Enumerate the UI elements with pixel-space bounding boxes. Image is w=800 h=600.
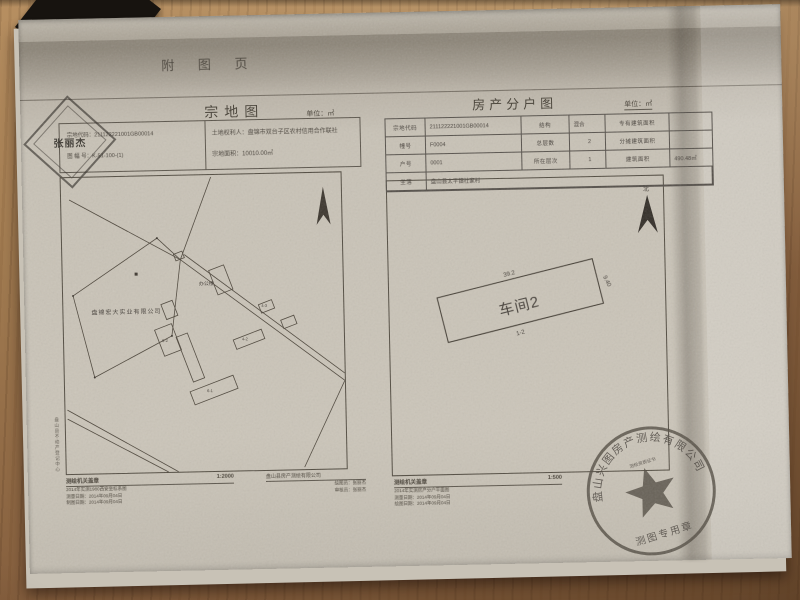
- building-label: 4-3: [261, 303, 268, 308]
- table-label: 结构: [521, 116, 569, 135]
- parcel-area-value: 10010.00㎡: [242, 151, 273, 158]
- table-label: 幢号: [386, 137, 426, 156]
- building-label: 6-1: [207, 388, 214, 393]
- name-stamp-text: 张丽杰: [53, 134, 86, 150]
- north-arrow-icon: [637, 195, 658, 233]
- seal-star-icon: [620, 460, 682, 520]
- survey-agency-label: 测绘机关盖章: [394, 478, 427, 487]
- table-label: 坐落: [387, 173, 427, 192]
- checker: 审核员：张丽杰: [266, 486, 366, 495]
- property-info-table: 宗地代码 211122221001GB00014 结构 混合 专有建筑面积 幢号…: [384, 112, 713, 193]
- survey-agency-label: 测绘机关盖章: [66, 476, 99, 485]
- table-label: 所在层次: [522, 152, 570, 171]
- table-value: F0004: [426, 135, 522, 155]
- document-page: 附 图 页 宗地图 单位：㎡ 宗地代码：211122221001GB00014 …: [18, 4, 791, 574]
- building-name: 车间2: [497, 293, 541, 320]
- building-label: 6-2: [162, 338, 169, 343]
- land-holder-label: 土地权利人：: [212, 130, 248, 137]
- company-label: 盘锦宏大实业有限公司: [91, 307, 161, 316]
- office-building-label: 办公楼: [199, 280, 214, 287]
- table-value: [669, 113, 711, 132]
- table-label: 分摊建筑面积: [606, 131, 670, 150]
- division-map-footer: 测绘机关盖章 1:500 2014年实测房产分户平面图 测量日期：2014年09…: [394, 475, 563, 508]
- seal-middle-text: 测绘资质证书: [629, 455, 657, 470]
- parcel-map-frame: 盘锦宏大实业有限公司 办公楼 6-2 6-1 4-2 4-3: [60, 171, 348, 475]
- building-width: 9.40: [601, 275, 612, 289]
- parcel-area-label: 宗地面积：: [212, 151, 242, 158]
- building-floors: 1-2: [516, 329, 527, 337]
- map-scale: 1:2000: [217, 474, 234, 482]
- map-scale: 1:500: [548, 475, 562, 483]
- table-value: 211122221001GB00014: [425, 117, 521, 137]
- table-label: 户号: [386, 155, 426, 174]
- division-map-title: 房产分户图: [472, 93, 557, 114]
- table-value: 混合: [569, 115, 605, 134]
- north-arrow-icon: [316, 187, 331, 225]
- north-label: 北: [643, 185, 649, 193]
- table-value: [670, 131, 712, 150]
- land-holder-value: 盘锦市双台子区农村信用合作联社: [248, 128, 338, 136]
- personal-name-stamp: 张丽杰: [23, 95, 116, 188]
- attachment-page-title: 附 图 页: [161, 53, 258, 75]
- table-value: 1: [570, 151, 606, 170]
- photo-of-document: { "page": { "corner_note": "附 图 页" }, "l…: [0, 0, 800, 600]
- workshop-building-drawing: 车间2 39.2 1-2 9.40: [399, 231, 642, 376]
- division-map-unit: 单位：㎡: [624, 99, 652, 111]
- table-label: 宗地代码: [385, 119, 425, 138]
- table-value: 490.48㎡: [670, 149, 712, 168]
- parcel-map-footer: 测绘机关盖章 1:2000 2014年实测1980西安坐标系图 测量日期：201…: [66, 474, 235, 507]
- parcel-map-drawing: 盘锦宏大实业有限公司 办公楼 6-2 6-1 4-2 4-3: [61, 172, 347, 474]
- table-value: 2: [570, 133, 606, 152]
- table-label: 建筑面积: [606, 149, 670, 168]
- map-maker-block: 盘山县房产测绘有限公司 绘图员：张丽杰 审核员：张丽杰: [266, 471, 366, 495]
- building-length: 39.2: [503, 270, 516, 279]
- table-value: 0001: [426, 153, 522, 173]
- registry-side-note: 盘山县不动产登记中心: [54, 417, 62, 495]
- table-label: 总层数: [522, 134, 570, 153]
- table-label: 专有建筑面积: [605, 113, 669, 132]
- building-label: 4-2: [242, 336, 249, 341]
